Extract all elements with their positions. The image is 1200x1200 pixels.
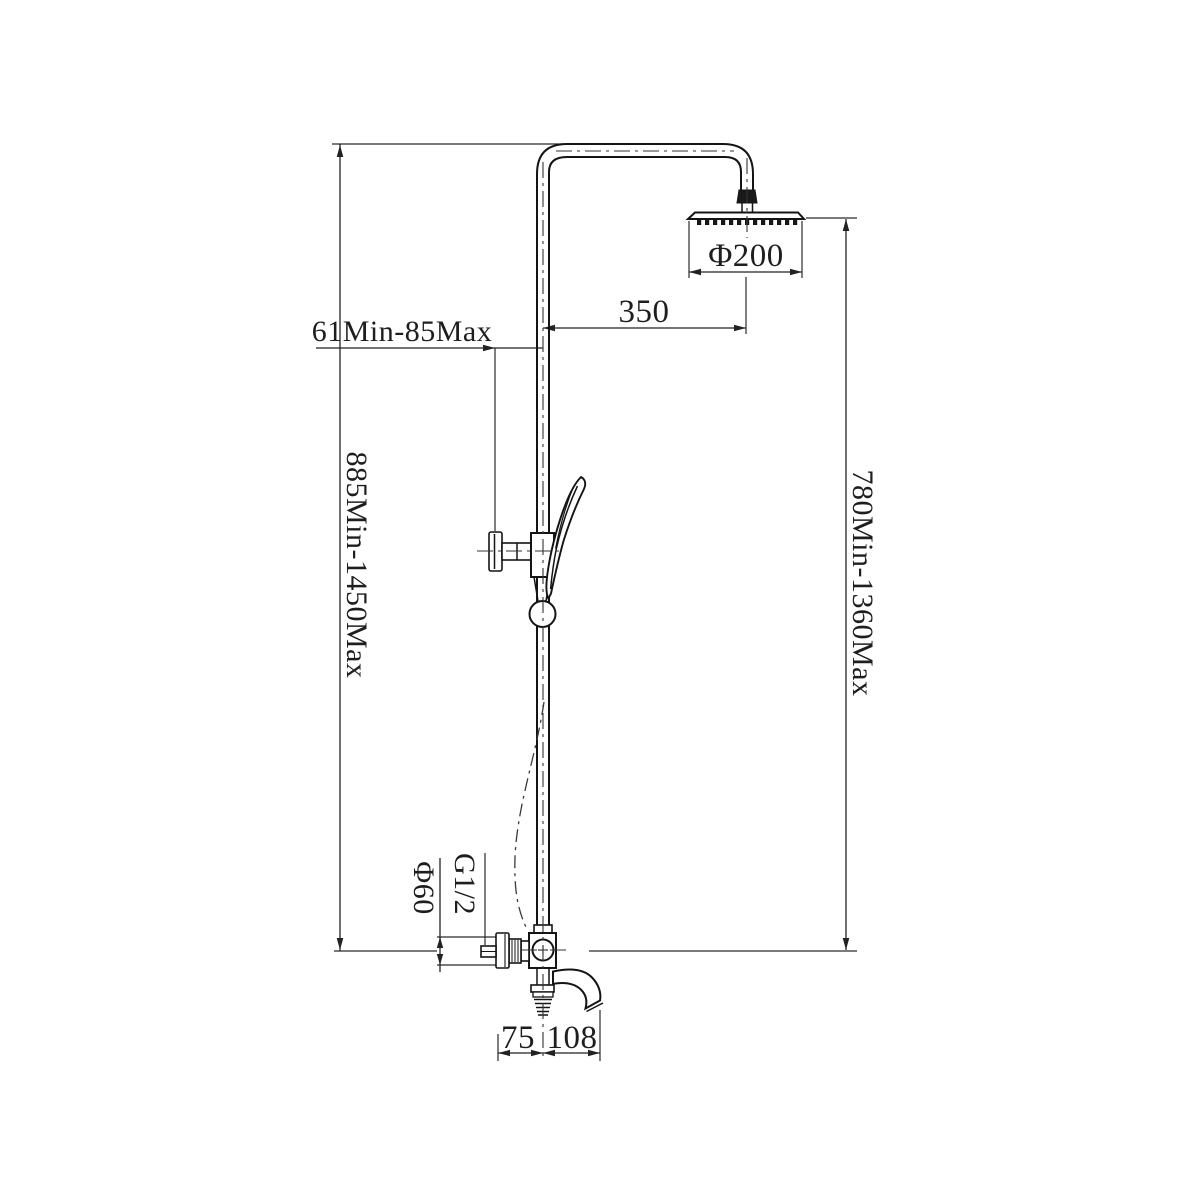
label-arm-reach: 350	[619, 294, 670, 330]
label-handle-diameter: Φ60	[407, 861, 440, 914]
dimension-lines	[316, 144, 846, 1053]
label-head-diameter: Φ200	[708, 238, 784, 274]
shower-hose	[515, 702, 544, 931]
dimension-arrows	[337, 145, 850, 1056]
valve-left-adapter	[521, 941, 529, 961]
head-plate	[688, 213, 804, 220]
label-head-height-range: 780Min-1360Max	[846, 470, 879, 697]
mixer-valve	[481, 925, 556, 968]
label-inlet-thread: G1/2	[448, 853, 481, 915]
label-wall-to-riser: 75	[501, 1020, 535, 1056]
slide-bracket	[489, 532, 554, 601]
wall-flange	[496, 933, 509, 968]
overhead-shower-head	[688, 190, 804, 225]
tub-spout	[553, 969, 603, 1011]
label-bracket-range: 61Min-85Max	[312, 315, 493, 348]
extension-lines	[332, 144, 857, 1061]
label-riser-height-range: 885Min-1450Max	[340, 452, 373, 679]
label-riser-to-spout: 108	[547, 1020, 598, 1056]
technical-drawing-canvas: Φ200 350 61Min-85Max 885Min-1450Max 780M…	[0, 0, 1200, 1200]
centerlines	[477, 151, 747, 1058]
dimension-labels: Φ200 350 61Min-85Max 885Min-1450Max 780M…	[312, 238, 879, 1056]
shower-system-drawing: Φ200 350 61Min-85Max 885Min-1450Max 780M…	[0, 0, 1200, 1200]
